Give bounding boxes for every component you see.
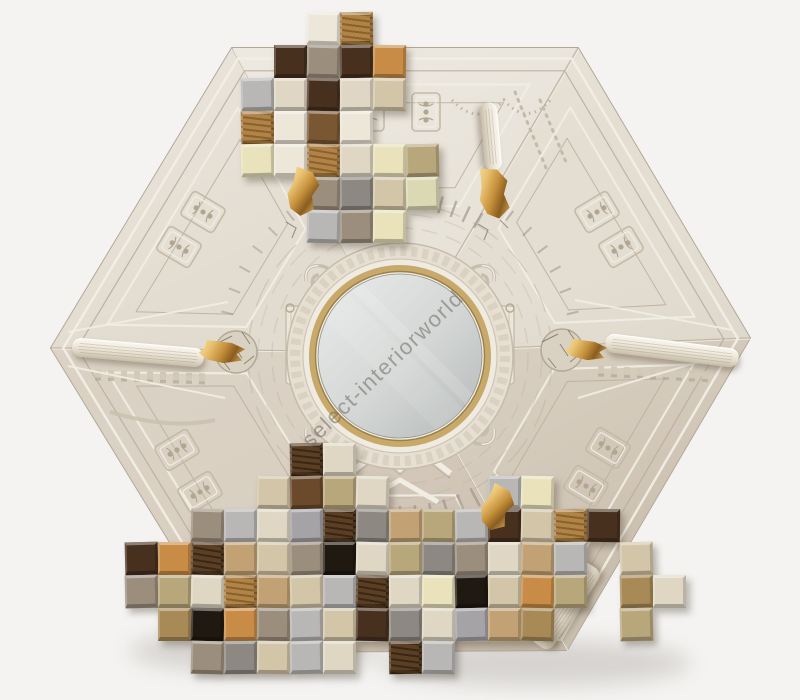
mosaic-cube [323,608,356,641]
mosaic-cube [290,608,324,642]
mosaic-cube [422,575,455,608]
mosaic-cube [554,542,587,575]
mosaic-cube [257,575,290,608]
mosaic-cube [323,542,356,575]
mosaic-cube [257,608,290,641]
mosaic-cube [653,575,686,608]
mosaic-cube [257,509,290,542]
mosaic-cube [340,210,373,243]
mosaic-cube [340,12,373,45]
mosaic-cube [554,509,587,542]
mosaic-cube [373,45,406,78]
mosaic-cube [307,111,341,145]
mosaic-cube [290,542,324,576]
mosaic-cube [224,641,257,674]
mosaic-cube [307,210,341,244]
mosaic-cube [389,542,422,575]
mosaic-cube [257,542,290,575]
mosaic-cube [158,575,191,608]
mosaic-cube [340,177,373,210]
mosaic-cube [521,476,555,510]
mosaic-cube [521,509,555,543]
mosaic-cube [323,476,356,509]
mosaic-cube [274,111,307,144]
mosaic-cube [323,443,356,476]
mosaic-cube [224,575,257,608]
mosaic-cube [290,509,324,543]
mosaic-cube [323,509,356,542]
mosaic-cube [191,542,225,576]
mosaic-cube [158,608,191,641]
mosaic-cube [356,542,390,576]
mosaic-cube [323,641,356,674]
mosaic-cube [620,575,654,609]
mosaic-cube [125,542,159,576]
mosaic-cube [620,608,654,642]
mosaic-cube [455,542,489,576]
mosaic-cube [307,78,341,112]
mosaic-cube [406,177,440,211]
mosaic-cube [389,608,422,641]
mosaic-cube [340,144,373,177]
mosaic-cube [340,111,373,144]
mosaic-cube [241,144,275,178]
mosaic-cube [389,575,422,608]
mosaic-cube [373,177,406,210]
mosaic-cube [488,542,521,575]
mosaic-cube [191,608,225,642]
mosaic-cube [356,476,390,510]
mosaic-cube [455,575,489,609]
mosaic-cube [373,210,406,243]
mosaic-cube [455,608,489,642]
mosaic-cube [406,144,440,178]
mosaic-cube [422,608,455,641]
product-photo: select-interiorworld [0,0,800,700]
mosaic-cube [241,78,275,112]
mosaic-cube [290,476,324,510]
mosaic-cube [587,509,620,542]
mosaic-cube [373,144,406,177]
mosaic-cube [422,509,455,542]
mosaic-cube [422,542,455,575]
mosaic-cube [257,641,290,674]
mosaic-cube [389,641,422,674]
mosaic-cube [274,78,307,111]
mosaic-cube [521,608,555,642]
mosaic-cube [521,575,555,609]
mosaic-cube [373,78,406,111]
mosaic-cube [125,575,159,609]
mosaic-cube [340,45,373,78]
mosaic-cube [290,641,324,675]
mosaic-cube [224,509,257,542]
mosaic-cube [257,476,290,509]
mosaic-cube [389,509,422,542]
mosaic-cube [307,12,341,46]
mosaic-cube [191,575,225,609]
mosaic-cube [290,575,324,609]
mosaic-cube [620,542,654,576]
mosaic-cube [191,641,225,675]
mosaic-cube [224,542,257,575]
mosaic-cube [340,78,373,111]
mosaic-cube [356,509,390,543]
mosaic-cube [307,45,341,79]
mosaic-cube [422,641,455,674]
mosaic-cube [488,608,521,641]
mosaic-cube [323,575,356,608]
mosaic-cube [191,509,225,543]
mosaic-cube [356,608,390,642]
mosaic-cube [356,575,390,609]
mosaic-cube [554,575,587,608]
mosaic-cube [488,575,521,608]
mosaic-cube [274,45,307,78]
mosaic-cube [521,542,555,576]
mosaic-cube [241,111,275,145]
mosaic-cube [158,542,191,575]
mosaic-cube [224,608,257,641]
